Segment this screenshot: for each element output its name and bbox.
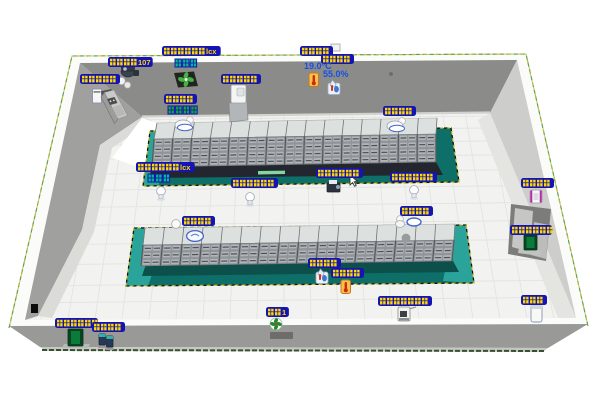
svg-text:1: 1 xyxy=(282,308,286,317)
svg-text:55.0%: 55.0% xyxy=(323,69,349,79)
svg-text:lcx: lcx xyxy=(180,163,191,172)
svg-text:lcx: lcx xyxy=(206,47,217,56)
svg-text:107: 107 xyxy=(138,58,151,67)
